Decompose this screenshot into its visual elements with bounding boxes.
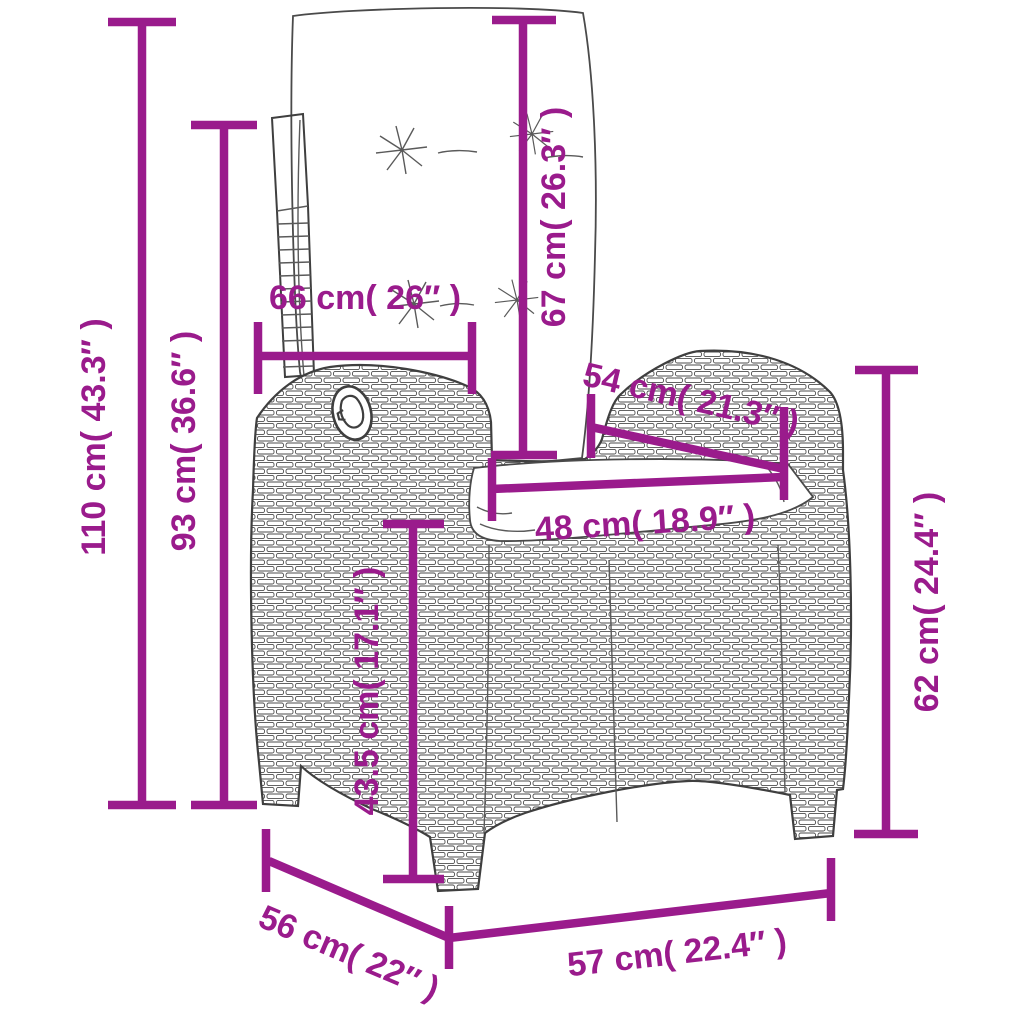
dimension-overall-height: 110 cm( 43.3″ ) [75,22,176,805]
dimension-label-depth: 56 cm( 22″ ) [253,898,445,1008]
dimension-back-height: 93 cm( 36.6″ ) [165,125,257,805]
dimension-depth: 56 cm( 22″ ) [253,829,449,1008]
dimension-armrest-height: 62 cm( 24.4″ ) [854,370,946,834]
dimension-label-overall-height: 110 cm( 43.3″ ) [75,318,113,555]
chair-dimension-drawing: 110 cm( 43.3″ ) 93 cm( 36.6″ ) 66 cm( 26… [0,0,1024,1024]
dimension-diagram: 110 cm( 43.3″ ) 93 cm( 36.6″ ) 66 cm( 26… [0,0,1024,1024]
dimension-label-back-height: 93 cm( 36.6″ ) [165,331,203,551]
dimension-label-width: 57 cm( 22.4″ ) [565,922,788,985]
dimension-label-back-width: 66 cm( 26″ ) [269,279,461,317]
dimension-width: 57 cm( 22.4″ ) [449,858,831,984]
dimension-label-backrest-length: 67 cm( 26.3″ ) [535,107,573,327]
dimension-label-seat-height: 43.5 cm( 17.1″ ) [348,567,386,816]
dimension-label-armrest-height: 62 cm( 24.4″ ) [908,492,946,712]
